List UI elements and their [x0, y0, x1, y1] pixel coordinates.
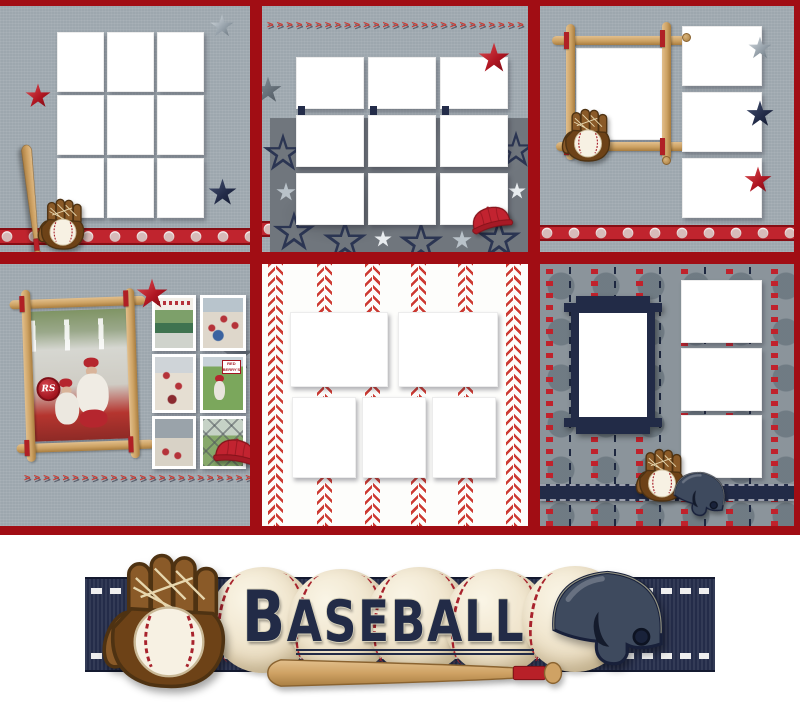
red-tape — [660, 30, 665, 47]
man-shorts — [79, 409, 108, 428]
baseball-bat-icon — [243, 656, 591, 690]
scrapbook-collage: >>>>>>>>>>>>>>>>>>>>>>>>>>> — [0, 0, 800, 726]
baseball-ribbon — [540, 225, 794, 241]
stitch-row: >>>>>>>>>>>>>>>>>>>>>>>>>>> — [267, 19, 527, 30]
photo-slot — [107, 158, 154, 218]
red-tape — [660, 138, 665, 155]
red-tape — [564, 32, 569, 49]
red-tape — [123, 290, 129, 306]
photo-slot — [681, 280, 762, 343]
gray-star-icon — [276, 182, 296, 202]
toddler-shirt — [214, 381, 224, 400]
bat-knob — [662, 156, 671, 165]
banner-area: BASEBALL — [0, 535, 800, 726]
pavilion-posts — [30, 317, 129, 352]
bat-knob — [682, 33, 691, 42]
grid-divider-vertical-2 — [528, 0, 540, 535]
photo-slot — [296, 57, 364, 109]
batting-helmet-icon — [545, 553, 670, 675]
photo-team-group — [152, 354, 196, 413]
clip-tab — [370, 106, 377, 115]
photo-slot — [157, 158, 204, 218]
red-star-icon — [25, 83, 51, 109]
navy-bracket-frame — [564, 296, 662, 434]
photo-slot — [107, 95, 154, 155]
photo-slot — [682, 92, 762, 152]
clip-tab — [442, 106, 449, 115]
clip-tab — [298, 106, 305, 115]
stitch-stripe — [458, 264, 473, 526]
grid-border-top — [0, 0, 800, 6]
banner-title: BASEBALL — [242, 582, 525, 653]
gray-star-icon — [262, 76, 282, 104]
main-photo: RS — [30, 308, 132, 441]
baseball-glove-icon — [560, 108, 616, 164]
boy-shirt — [55, 392, 80, 425]
template-page-3 — [540, 6, 794, 252]
photo-slot — [368, 115, 436, 167]
template-page-6 — [540, 264, 794, 526]
photo-slot — [157, 32, 204, 92]
baseball-glove-icon — [98, 552, 240, 694]
stitch-stripe — [365, 264, 380, 526]
grid-border-bottom — [0, 526, 800, 535]
red-tape — [128, 436, 134, 452]
gray-star-icon — [452, 230, 472, 250]
template-page-1 — [0, 6, 250, 252]
photo-slot — [368, 57, 436, 109]
ribbon-stub — [262, 221, 270, 237]
title-underline — [296, 649, 534, 651]
photo-slot — [682, 158, 762, 218]
template-page-5 — [262, 264, 528, 526]
photo-slot — [296, 173, 364, 225]
silver-star-icon — [210, 14, 234, 38]
template-page-2: >>>>>>>>>>>>>>>>>>>>>>>>>>> — [262, 6, 528, 252]
stitch-stripe — [411, 264, 426, 526]
photo-slot — [440, 115, 508, 167]
stitch-stripe — [317, 264, 332, 526]
stitch-stripe — [268, 264, 283, 526]
photo-slot — [57, 32, 104, 92]
photo-team-crowd — [200, 295, 246, 351]
example-page: RS RED BERRY'S >>>>>>>>>>>>>>>>>>>>>>>> — [0, 264, 250, 526]
white-star-icon — [508, 182, 526, 200]
photo-slot — [290, 312, 388, 387]
white-star-icon — [374, 230, 392, 248]
photo-slot — [432, 397, 496, 478]
navy-helmet-icon — [664, 461, 736, 523]
red-cap-icon — [210, 431, 250, 473]
photo-slot — [296, 115, 364, 167]
photo-slot — [681, 348, 762, 411]
photo-slot — [57, 95, 104, 155]
tilted-bat-frame: RS — [13, 294, 148, 456]
red-berrys-sign: RED BERRY'S — [222, 360, 240, 374]
grid-divider-vertical-1 — [250, 0, 262, 535]
photo-toddler-batting: RED BERRY'S — [200, 354, 246, 413]
photo-stands-crowd — [152, 416, 196, 469]
grid-border-right — [794, 0, 800, 535]
photo-slot — [157, 95, 204, 155]
stitch-row: >>>>>>>>>>>>>>>>>>>>>>>> — [24, 472, 250, 483]
stitch-stripe — [506, 264, 521, 526]
baseball-glove-icon — [36, 198, 90, 252]
red-tape — [19, 296, 25, 312]
photo-slot — [368, 173, 436, 225]
red-tape — [24, 440, 30, 456]
photo-slot — [107, 32, 154, 92]
photo-slot — [682, 26, 762, 86]
photo-slot — [398, 312, 498, 387]
grid-divider-horizontal — [0, 252, 800, 264]
photo-slot — [362, 397, 426, 478]
photo-slot — [292, 397, 356, 478]
navy-star-icon — [208, 178, 237, 207]
